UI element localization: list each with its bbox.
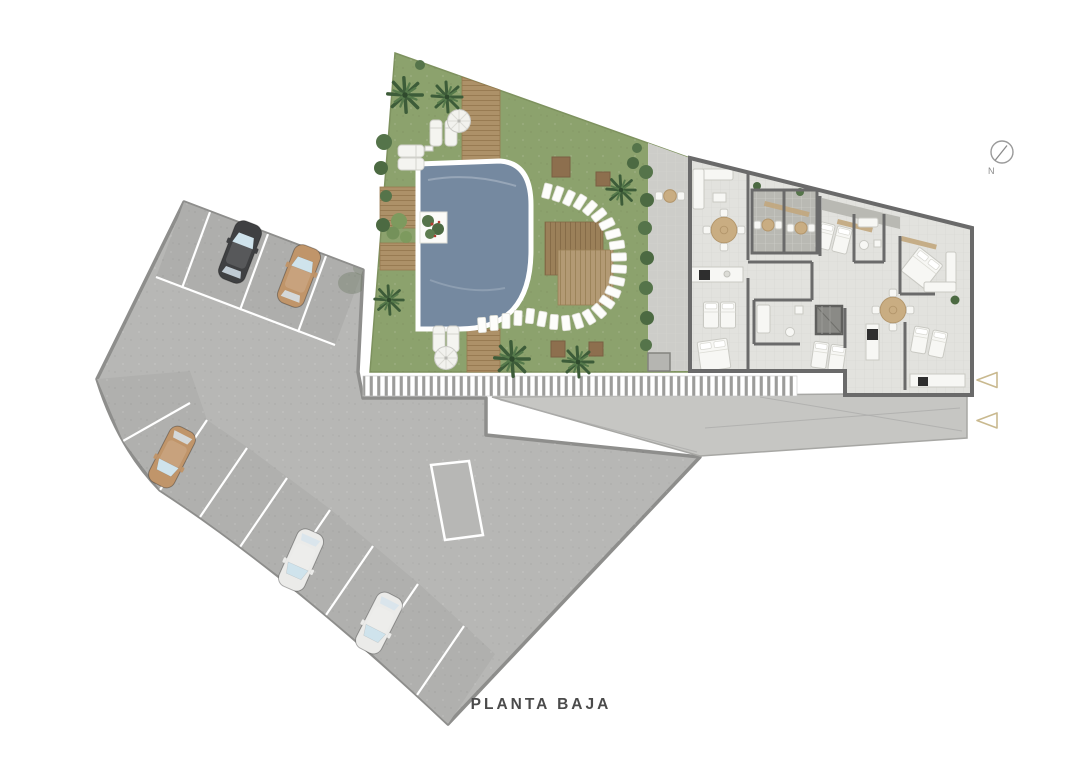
sofa	[924, 282, 956, 292]
pool-umbrella-bottom	[435, 347, 458, 370]
pergola-table	[551, 341, 565, 357]
sink	[874, 240, 881, 247]
entrance-markers	[977, 373, 997, 429]
apartment-building	[690, 158, 972, 395]
patio-table-set	[655, 190, 684, 203]
bed	[828, 344, 846, 372]
bed	[811, 341, 829, 369]
sink	[795, 306, 803, 314]
planter	[420, 212, 447, 243]
patio-strip	[648, 143, 690, 371]
deck-bottom-strip	[467, 329, 500, 372]
north-compass: N	[988, 141, 1013, 176]
entrance-arrow-1	[977, 373, 997, 388]
floor-plan-canvas: N PLANTA BAJA	[0, 0, 1080, 771]
stove	[699, 270, 710, 280]
bed	[704, 302, 719, 328]
floor-plan-page: N PLANTA BAJA	[0, 0, 1080, 771]
toilet	[786, 328, 795, 337]
floor-title: PLANTA BAJA	[471, 696, 612, 713]
pergola-table	[589, 342, 603, 356]
sofa	[946, 252, 956, 286]
patio-gate	[648, 353, 670, 371]
entrance-arrow-2	[977, 413, 997, 428]
toilet	[860, 241, 869, 250]
pergola-table	[552, 157, 570, 177]
kitchen-counter	[691, 267, 743, 282]
bed	[697, 338, 731, 372]
perimeter-fence	[363, 376, 797, 396]
sofa	[693, 169, 704, 209]
side-table	[425, 146, 433, 151]
stove	[918, 377, 928, 386]
coffee-table	[713, 193, 726, 202]
swimming-pool	[418, 161, 531, 329]
sink	[724, 271, 730, 277]
bathtub	[757, 305, 770, 333]
tree-shadow	[338, 272, 366, 294]
terrace-table-set	[787, 222, 815, 234]
bathtub	[858, 218, 878, 227]
compass-label: N	[988, 166, 995, 176]
pergola-table	[596, 172, 610, 186]
stair-shaft	[816, 306, 842, 334]
bed	[721, 302, 736, 328]
pool-umbrella-top	[448, 110, 471, 133]
garden	[370, 53, 690, 377]
terrace-table-set	[754, 219, 782, 231]
indoor-plant	[951, 296, 960, 305]
stove	[867, 329, 878, 340]
